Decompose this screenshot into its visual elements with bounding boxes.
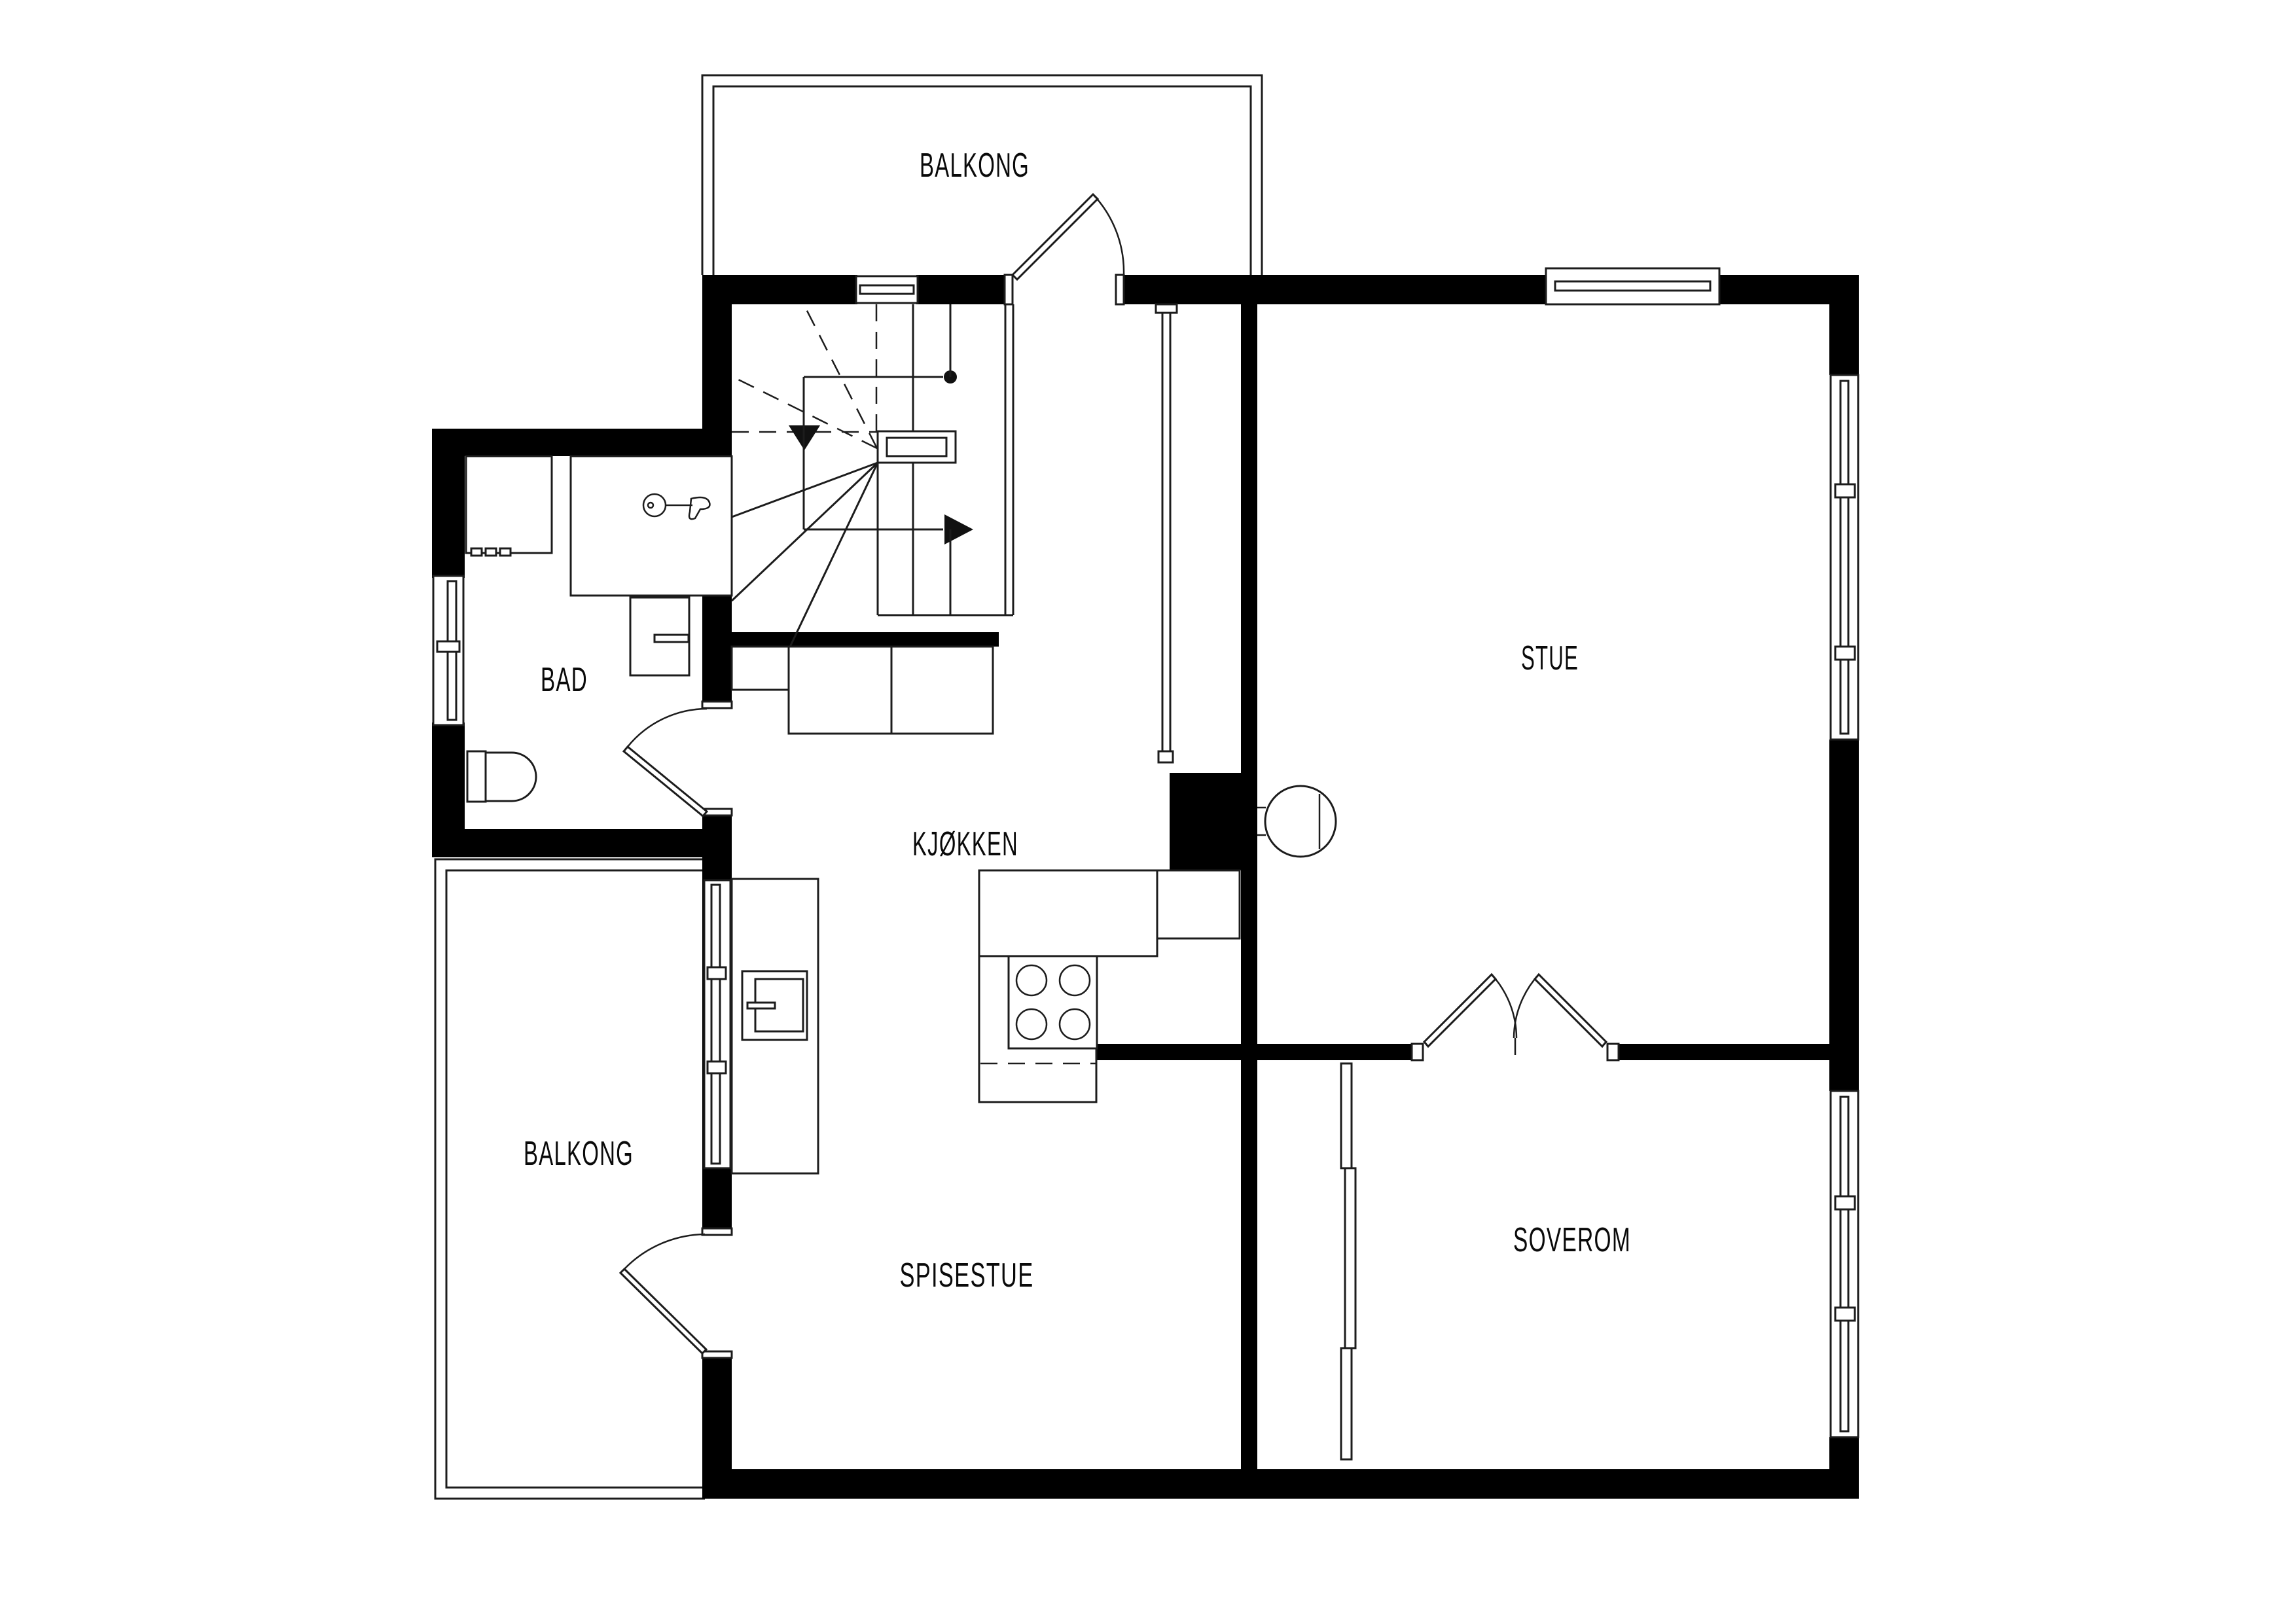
door-leaf — [1535, 974, 1606, 1046]
bad-door — [624, 702, 732, 816]
chimney-block — [1170, 773, 1253, 870]
bathroom-counter — [571, 456, 732, 596]
stove-handle — [747, 1003, 775, 1008]
round-wood-stove — [1257, 786, 1336, 857]
door-jamb — [702, 1351, 732, 1358]
room-label-kjokken: KJØKKEN — [912, 825, 1018, 863]
soverom-right-window — [1831, 1091, 1858, 1437]
toilet-tank — [467, 751, 486, 802]
room-label-soverom: SOVEROM — [1513, 1221, 1631, 1259]
spisestue-west-window — [704, 880, 730, 1168]
hall-partition — [1156, 304, 1177, 762]
toilet — [467, 751, 536, 802]
balcony-top-door — [1005, 194, 1124, 304]
room-label-spisestue: SPISESTUE — [900, 1257, 1034, 1294]
island-stove-cabinet — [732, 879, 818, 1173]
room-label-balkong-top: BALKONG — [920, 147, 1030, 185]
room-label-balkong-left: BALKONG — [524, 1135, 634, 1173]
staircase — [732, 304, 1013, 684]
interior-walls — [729, 304, 1829, 1469]
bad-window — [433, 576, 463, 725]
knob — [471, 548, 482, 556]
door-jamb — [702, 1228, 732, 1235]
door-jamb — [1005, 275, 1013, 304]
knob — [500, 548, 511, 556]
cooktop — [1009, 956, 1097, 1048]
shower-handle — [655, 635, 689, 642]
door-leaf — [620, 1269, 706, 1353]
door-swing-arc — [1514, 974, 1539, 1038]
door-swing-arc — [628, 709, 707, 747]
kitchen-cabinets — [732, 647, 993, 734]
balcony-left-railing — [435, 859, 705, 1499]
soverom-double-door — [1412, 974, 1619, 1060]
door-leaf — [1013, 194, 1098, 279]
stair-up-arrow — [944, 514, 973, 544]
floor-plan-page: BALKONG STUE BAD KJØKKEN BALKONG SPISEST… — [0, 0, 2296, 1623]
door-swing-arc — [1492, 974, 1516, 1038]
stue-top-window — [1546, 268, 1719, 304]
door-jamb — [1607, 1044, 1619, 1060]
door-jamb — [1412, 1044, 1423, 1060]
balcony-left-door — [620, 1228, 732, 1358]
shower-cabinet — [630, 597, 689, 675]
door-leaf — [624, 747, 707, 816]
stair-window — [856, 276, 918, 303]
exterior-walls — [702, 275, 1859, 1499]
room-label-stue: STUE — [1521, 639, 1579, 677]
floor-plan: BALKONG STUE BAD KJØKKEN BALKONG SPISEST… — [0, 0, 2296, 1623]
door-leaf — [1424, 974, 1496, 1046]
door-swing-arc — [1093, 194, 1124, 275]
washing-machine — [466, 456, 552, 556]
wardrobe — [1341, 1063, 1355, 1459]
toilet-bowl — [486, 753, 536, 801]
door-jamb — [702, 702, 732, 708]
room-label-bad: BAD — [541, 661, 588, 699]
room-labels: BALKONG STUE BAD KJØKKEN BALKONG SPISEST… — [524, 147, 1631, 1294]
stue-right-window — [1831, 375, 1858, 740]
knob — [486, 548, 496, 556]
door-swing-arc — [624, 1234, 705, 1269]
door-jamb — [1116, 275, 1124, 304]
